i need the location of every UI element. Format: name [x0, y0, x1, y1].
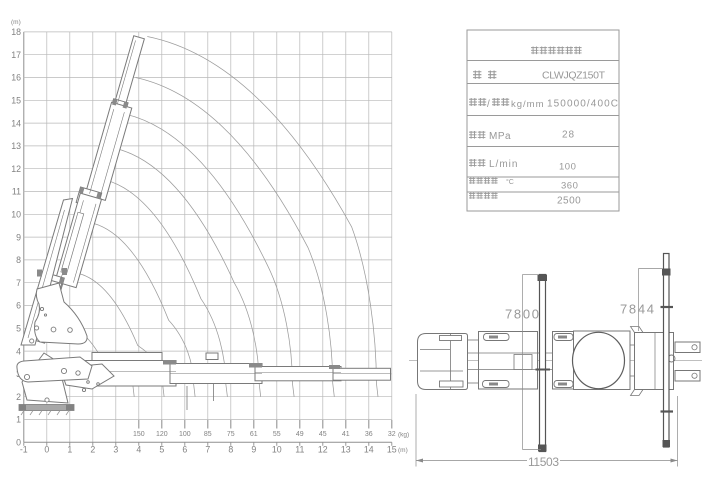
svg-text:1: 1: [67, 445, 72, 455]
svg-text:5: 5: [16, 324, 21, 334]
svg-text:12: 12: [318, 445, 328, 455]
svg-text:15: 15: [11, 96, 21, 106]
svg-text:9: 9: [251, 445, 256, 455]
svg-text:6: 6: [182, 445, 187, 455]
svg-text:18: 18: [11, 27, 21, 37]
svg-text:(m): (m): [11, 19, 21, 26]
svg-text:13: 13: [11, 141, 21, 151]
svg-text:6: 6: [16, 301, 21, 311]
svg-text:7844: 7844: [620, 302, 654, 317]
svg-text:0: 0: [44, 445, 49, 455]
svg-text:120: 120: [156, 431, 168, 438]
svg-text:150000/400C: 150000/400C: [547, 99, 618, 110]
svg-text:10: 10: [11, 210, 21, 220]
svg-text:17: 17: [11, 50, 21, 60]
svg-text:16: 16: [11, 73, 21, 83]
svg-text:15: 15: [387, 445, 397, 455]
svg-text:L/min: L/min: [489, 159, 518, 170]
svg-text:8: 8: [16, 255, 21, 265]
svg-text:14: 14: [364, 445, 374, 455]
svg-text:7800: 7800: [505, 307, 539, 322]
svg-text:2: 2: [16, 392, 21, 402]
svg-text:61: 61: [250, 431, 258, 438]
svg-text:2500: 2500: [557, 196, 581, 207]
svg-text:150: 150: [133, 431, 145, 438]
svg-text:4: 4: [136, 445, 141, 455]
svg-text:/: /: [487, 99, 490, 110]
svg-text:kg/mm: kg/mm: [511, 99, 545, 110]
svg-text:11: 11: [295, 445, 304, 455]
svg-text:5: 5: [159, 445, 164, 455]
svg-text:11503: 11503: [528, 455, 559, 469]
svg-text:13: 13: [341, 445, 351, 455]
svg-text:85: 85: [204, 431, 212, 438]
svg-text:7: 7: [205, 445, 210, 455]
svg-text:49: 49: [296, 431, 304, 438]
svg-text:45: 45: [319, 431, 327, 438]
svg-text:(kg): (kg): [398, 432, 409, 439]
svg-text:75: 75: [227, 431, 235, 438]
svg-text:4: 4: [16, 346, 21, 356]
svg-text:12: 12: [11, 164, 21, 174]
svg-text:11: 11: [12, 187, 21, 197]
svg-text:360: 360: [561, 181, 578, 192]
svg-text:CLWJQZ150T: CLWJQZ150T: [542, 70, 606, 82]
svg-text:MPa: MPa: [489, 131, 511, 142]
svg-text:9: 9: [16, 232, 21, 242]
svg-text:(m): (m): [398, 447, 408, 454]
svg-text:14: 14: [11, 118, 21, 128]
svg-text:8: 8: [228, 445, 233, 455]
svg-text:100: 100: [559, 162, 576, 173]
svg-text:10: 10: [272, 445, 282, 455]
svg-text:7: 7: [16, 278, 21, 288]
svg-text:36: 36: [365, 431, 373, 438]
svg-text:2: 2: [90, 445, 95, 455]
svg-text:41: 41: [342, 431, 350, 438]
svg-text:100: 100: [179, 431, 191, 438]
svg-text:-1: -1: [20, 445, 28, 455]
svg-text:3: 3: [113, 445, 118, 455]
svg-text:55: 55: [273, 431, 281, 438]
svg-text:28: 28: [562, 130, 575, 141]
svg-text:°C: °C: [506, 178, 514, 186]
svg-text:1: 1: [16, 415, 21, 425]
svg-text:32: 32: [388, 431, 396, 438]
